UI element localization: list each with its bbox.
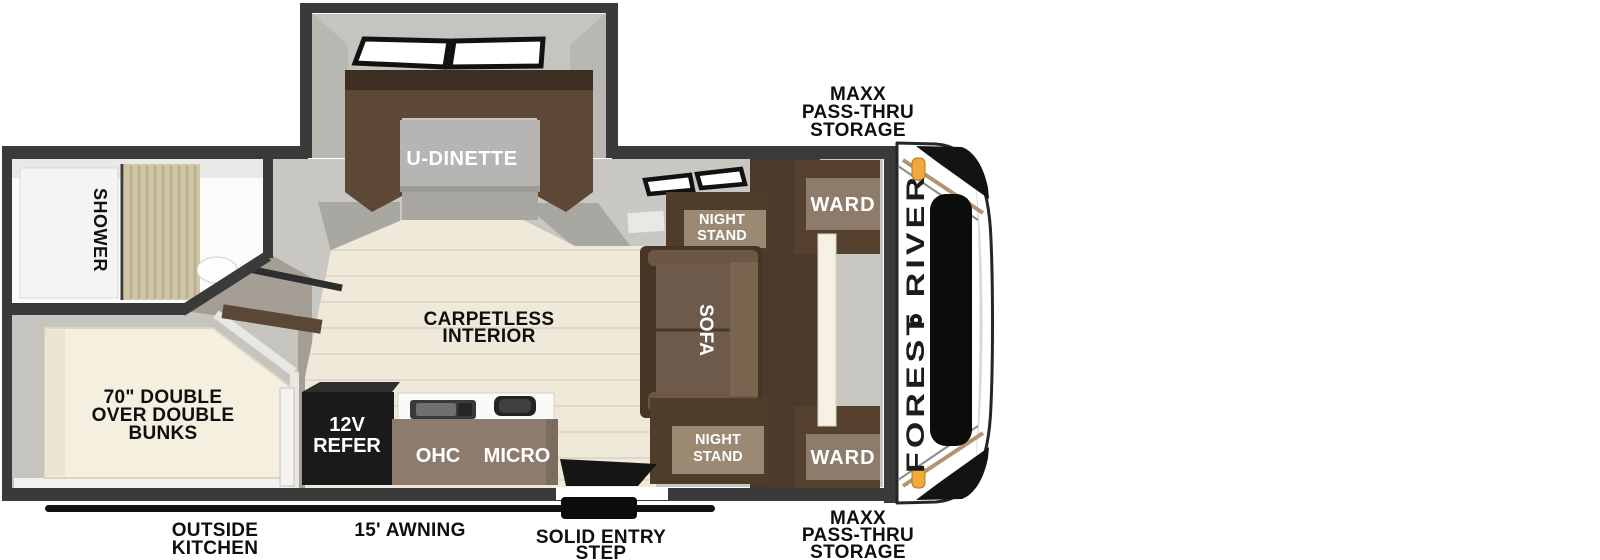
- bunk-bed-edge: [45, 330, 65, 476]
- window-pane: [355, 39, 449, 67]
- label-carpetless-line2: INTERIOR: [442, 326, 535, 347]
- label-sofa: SOFA: [695, 304, 716, 356]
- wall-bottom: [2, 488, 897, 501]
- label-refer-line2: REFER: [313, 435, 381, 457]
- murphy-bed: [818, 234, 836, 426]
- kitchen: 12V REFER OHC MICRO: [280, 382, 558, 486]
- label-night-stand-bottom-1: NIGHT: [695, 432, 741, 448]
- dinette-window: [355, 39, 543, 67]
- wall-slide-right: [606, 3, 618, 158]
- label-shower: SHOWER: [90, 188, 110, 272]
- sink-basin: [499, 399, 531, 413]
- window-pane: [697, 169, 745, 188]
- wall-slide-top: [300, 3, 618, 13]
- floor-highlight: [627, 211, 664, 233]
- window-pane: [450, 39, 543, 67]
- window-pane: [645, 175, 693, 194]
- dinette-platform: [402, 192, 538, 220]
- stove-knob-panel: [458, 403, 472, 416]
- wall-front: [884, 146, 897, 503]
- label-bunks-line3: BUNKS: [128, 423, 197, 444]
- wall-divider: [2, 303, 185, 315]
- label-ward-top: WARD: [810, 194, 875, 216]
- label-micro: MICRO: [484, 445, 551, 467]
- wall-top-right: [612, 146, 897, 159]
- bunk-wall-seam: [14, 478, 298, 488]
- label-ward-bottom: WARD: [810, 447, 875, 469]
- label-awning: 15' AWNING: [354, 520, 465, 541]
- dinette-table-shadow: [400, 186, 540, 192]
- cap-window-panel: [930, 194, 972, 446]
- stove-grate: [416, 403, 456, 416]
- bunk-room: 70" DOUBLE OVER DOUBLE BUNKS: [12, 314, 299, 488]
- wall-top-left: [2, 146, 308, 159]
- label-storage-top-3: STORAGE: [810, 120, 906, 141]
- label-storage-bottom-3: STORAGE: [810, 542, 906, 560]
- front-cap: FOREST RIVER: [897, 143, 993, 503]
- label-entry-step-2: STEP: [576, 543, 627, 560]
- floorplan-page: SHOWER 70" DOUBLE OVER DOUBLE BUNKS: [0, 0, 1600, 560]
- dinette-bench-top: [345, 70, 593, 90]
- label-night-stand-top-2: STAND: [697, 228, 747, 244]
- dinette-slideout: U-DINETTE: [312, 13, 606, 220]
- wall-slide-left: [300, 3, 312, 158]
- label-outside-kitchen-2: KITCHEN: [172, 538, 259, 559]
- label-ohc: OHC: [416, 445, 460, 467]
- dinette-bench-right: [537, 118, 593, 212]
- wall-rear: [2, 146, 12, 500]
- dinette-bench-left: [345, 118, 402, 212]
- label-u-dinette: U-DINETTE: [406, 148, 517, 170]
- label-refer-line1: 12V: [329, 414, 365, 436]
- sofa-back: [730, 262, 758, 396]
- kitchen-cabinet: [280, 388, 294, 486]
- label-night-stand-top-1: NIGHT: [699, 212, 745, 228]
- wall-shower-right: [263, 158, 273, 258]
- brand-logo-dot: [914, 318, 918, 322]
- floorplan-svg: SHOWER 70" DOUBLE OVER DOUBLE BUNKS: [0, 0, 1600, 560]
- entry-step: [561, 497, 637, 519]
- label-night-stand-bottom-2: STAND: [693, 449, 743, 465]
